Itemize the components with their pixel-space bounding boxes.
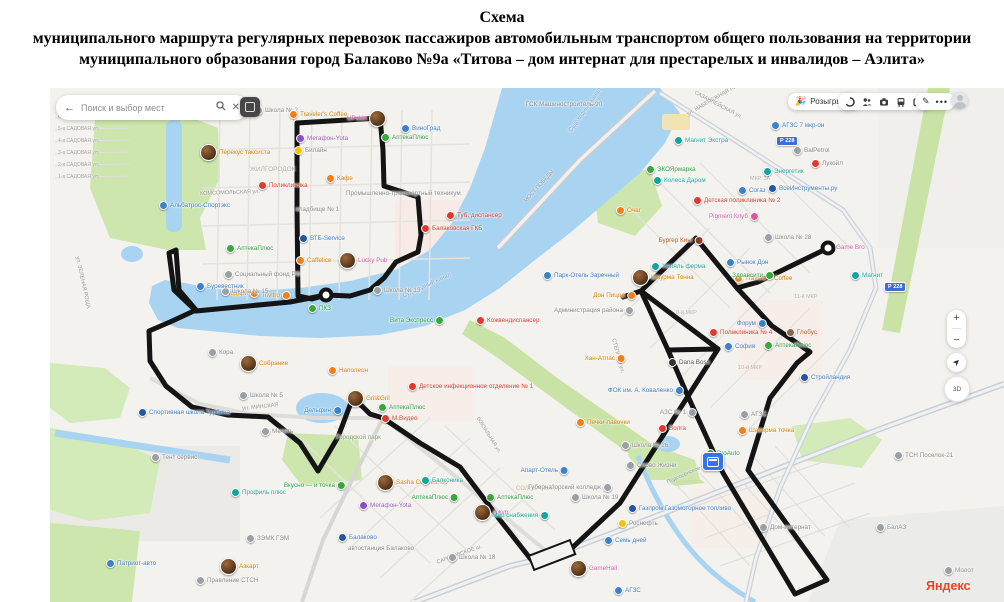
poi-dot[interactable]: Слово Жизни [626,461,677,470]
poi-dot[interactable]: Энергетик [763,167,804,176]
poi-photo-icon [200,144,217,161]
poi-label: Поликлиника № 4 [720,329,772,336]
poi-dot-icon [764,233,773,242]
poi-dot[interactable]: Согаз [738,186,766,195]
poi-dot-icon [208,348,217,357]
search-icon[interactable] [216,101,226,114]
poi-dot-icon [876,523,885,532]
poi-label: Очаг [627,207,641,214]
poi-dot[interactable]: Поликлиника № 4 [709,328,772,337]
poi-label: ГСК Машиностроитель-90 [526,101,602,108]
poi-dot[interactable]: Pigment Клуб [709,212,759,221]
poi-label: Глобус [797,329,817,336]
poi-dot-icon [378,403,387,412]
poi-dot[interactable]: Дельфин [304,406,342,415]
poi-dot-icon [401,124,410,133]
poi-dot[interactable]: Школа № 5 [239,391,283,400]
camera-icon[interactable] [879,97,889,107]
poi-dot[interactable]: Кожвендиспансер [476,316,539,325]
poi-dot-icon [695,236,704,245]
poi-label: М.Видео [392,415,417,422]
poi-label: Хан-Атлас [585,355,615,362]
title-line-2: муниципального маршрута регулярных перев… [0,28,1004,70]
poi-dot[interactable]: Парк-Отель Заречный [543,271,619,280]
poi-dot-icon [446,211,455,220]
poi-dot[interactable]: Dana Boss [668,358,710,367]
poi-dot-icon [800,373,809,382]
poi-dot-icon [196,282,205,291]
avatar-icon [957,95,963,101]
poi-dot-icon [373,286,382,295]
poi-label: Правление СТСН [207,577,258,584]
poi-dot-icon [576,418,585,427]
poi-dot-icon [106,559,115,568]
poi-dot[interactable]: Мечеть [261,427,293,436]
poi-dot[interactable]: Патриот-авто [106,559,156,568]
poi-label: Детское инфекционное отделение № 1 [419,383,533,390]
poi-label: UPskin [347,115,367,122]
poi-label: Собрание [259,360,288,367]
poi-label: Шаурма Тонна [651,274,694,281]
poi-dot-icon [750,212,759,221]
poi-label: Магнит [862,272,883,279]
poi-dot[interactable]: Социальный фонд РФ [224,270,300,279]
poi-dot-icon [674,136,683,145]
poi-photo-icon [377,474,394,491]
poi-dot-icon [231,488,240,497]
poi-dot[interactable]: Вита Экспресс [390,316,444,325]
poi-label: Наполеон [339,367,368,374]
poi-label: Вита Экспресс [390,317,433,324]
poi-dot-icon [296,134,305,143]
poi-label: Азкарт [239,563,259,570]
poi-dot[interactable]: ПКЗ [308,304,331,313]
poi-label: Альбатрос-Спортэкс [170,202,230,209]
poi-dot[interactable]: АптекаПлюс [764,341,811,350]
poi-dot-icon [261,427,270,436]
poi-dot[interactable]: АптекаПлюс [381,133,428,142]
poi-photo-icon [240,355,257,372]
poi-label: АптекаПлюс [775,342,811,349]
poi-dot[interactable]: Балаковская ГКБ [421,224,482,233]
poi-photo[interactable]: Шаурма Тонна [632,269,694,286]
poi-dot[interactable]: Наполеон [328,366,368,375]
poi-plain[interactable]: ГСК Машиностроитель-90 [526,101,602,108]
poi-dot-icon [758,319,767,328]
poi-dot[interactable]: Молот [944,566,974,575]
poi-label: Буревестник [207,283,244,290]
poi-label: Промышленно-транспортный техникум [346,190,461,197]
poi-label: Дом-интернат [770,524,811,531]
poi-label: Туб. диспансер [457,212,502,219]
poi-dot[interactable]: Газпром Газомоторное топливо [628,504,731,513]
poi-dot[interactable]: Профиль плюс [231,488,286,497]
poi-label: Мегафон-Yota [307,135,348,142]
poi-dot-icon [224,270,233,279]
poi-dot-icon [604,536,613,545]
poi-dot[interactable]: Билайн [294,146,327,155]
poi-dot[interactable]: Дон Пицца [593,291,636,300]
poi-dot-icon [675,386,684,395]
poi-dot[interactable]: Мегафон-Yota [359,501,411,510]
poi-dot-icon [328,366,337,375]
poi-dot-icon [333,406,342,415]
bus-icon [707,457,719,467]
tilt-3d-label: 3D [953,386,961,393]
poi-dot[interactable]: Вкусно — и точка [284,481,346,490]
poi-label: АптекаПлюс [412,494,448,501]
poi-label: Стройландия [811,374,850,381]
poi-label: Билайн [305,147,327,154]
poi-dot-icon [614,586,623,595]
poi-dot-icon [159,201,168,210]
poi-label: Здравсити [732,272,763,279]
poi-dot-icon [282,291,291,300]
poi-label: кладбище № 1 [296,206,339,213]
poi-dot[interactable]: Caffelice [296,256,331,265]
poi-dot-icon [668,358,677,367]
poi-dot[interactable]: АптекаПлюс [412,493,459,502]
poi-dot-icon [793,146,802,155]
poi-dot[interactable]: Школа № 28 [764,233,811,242]
poi-dot-icon [617,354,626,363]
poi-dot[interactable]: Лукойл [811,159,843,168]
poi-dot[interactable]: Стройландия [800,373,850,382]
poi-plain[interactable]: Промышленно-транспортный техникум [346,190,461,197]
poi-dot-icon [450,493,459,502]
poi-label: Dana Boss [679,359,710,366]
poi-label: Школа № 13 [384,287,420,294]
poi-dot-icon [651,262,660,271]
poi-dot-icon [646,165,655,174]
poi-dot-icon [571,493,580,502]
poi-label: Кора [219,349,233,356]
poi-dot-icon [764,341,773,350]
poi-dot[interactable]: BalPetrol [793,146,830,155]
poi-label: автостанция Балаково [348,545,414,552]
poi-dot-icon [628,504,637,513]
poi-label: Согаз [749,187,766,194]
poi-label: Школа № 28 [775,234,811,241]
poi-dot[interactable]: София [724,342,755,351]
poi-dot[interactable]: Здравсити [732,271,774,280]
poi-dot-icon [724,342,733,351]
poi-photo-icon [369,110,386,127]
poi-dot[interactable]: АптекаПлюс [378,403,425,412]
poi-dot[interactable]: Рынок Дон [726,258,769,267]
poi-dot[interactable]: М.Видео [381,414,417,423]
poi-dot[interactable]: Шаверма точка [738,426,794,435]
poi-dot[interactable]: Правление СТСН [196,576,258,585]
poi-dot-icon [653,176,662,185]
poi-dot-icon [688,408,697,417]
poi-label: ФОК им. А. Коваленко [608,387,673,394]
poi-dot[interactable]: Школа № 18 [448,553,495,562]
poi-label: Caffelice [307,257,331,264]
poi-photo-icon [347,390,364,407]
poi-dot-icon [421,224,430,233]
poi-dot[interactable]: АптекаПлюс [226,244,273,253]
poi-label: ТСН Поселок-21 [905,452,953,459]
poi-dot-icon [621,441,630,450]
poi-label: АптекаПлюс [497,494,533,501]
poi-label: Дельфин [304,407,331,414]
poi-label: Школа № 26 [632,442,668,449]
poi-dot-icon [226,244,235,253]
poi-label: Профиль плюс [242,489,286,496]
tilt-3d-control[interactable]: 3D [944,376,970,402]
road-shield: Р 228 [776,136,798,146]
poi-dot[interactable]: Школа № 26 [621,441,668,450]
poi-dot-icon [258,181,267,190]
poi-dot-icon [759,523,768,532]
poi-dot[interactable]: Мир снабжения [492,511,549,520]
poi-label: София [735,343,755,350]
poi-dot-icon [337,481,346,490]
poi-dot-icon [765,271,774,280]
poi-label: Магнит Экстра [685,137,728,144]
poi-dot[interactable]: ФОК им. А. Коваленко [608,386,684,395]
search-placeholder: Поиск и выбор мест [81,103,210,113]
poi-dot[interactable]: Семь дней [604,536,647,545]
poi-dot[interactable]: Глобус [786,328,817,337]
poi-label: Парк-Отель Заречный [554,272,619,279]
poi-dot-icon [151,453,160,462]
avatar[interactable] [951,92,968,109]
poi-dot[interactable]: Мегафон-Yota [296,134,348,143]
poi-label: Колеса Даром [664,177,706,184]
back-icon[interactable]: ← [64,102,75,114]
poi-dot-icon [738,426,747,435]
poi-dot-icon [763,167,772,176]
poi-label: Школа № 5 [250,392,283,399]
poi-dot[interactable]: АЗС № 1 [660,408,697,417]
poi-dot[interactable]: Кора [208,348,233,357]
poi-label: Школа № 19 [582,494,618,501]
poi-dot-icon [138,408,147,417]
poi-plain[interactable]: Game Bro [836,244,865,251]
poi-dot-icon [726,258,735,267]
poi-label: АГЗС [625,587,641,594]
zoom-out-button[interactable]: − [953,335,959,345]
poi-dot[interactable]: Туб. диспансер [446,211,502,220]
poi-label: Кафе [337,175,353,182]
poi-label: Вкусно — и точка [284,482,335,489]
poi-dot[interactable]: Волга [658,424,686,433]
poi-dot[interactable]: ВиноГрад [401,124,440,133]
poi-label: Мир снабжения [492,512,538,519]
title-line-1: Схема [0,0,1004,28]
poi-label: Дон Пицца [593,292,625,299]
poi-label: BalPetrol [804,147,830,154]
gift-icon: 🎉 [795,96,806,107]
poi-dot-icon [894,451,903,460]
poi-dot[interactable]: АГЗС 7 мкр-он [771,121,824,130]
poi-dot-icon [768,184,777,193]
poi-dot[interactable]: Очаг [616,206,641,215]
poi-dot-icon [616,206,625,215]
poi-dot-icon [476,316,485,325]
poi-label: Бургер Кинг [659,237,693,244]
poi-dot-icon [338,533,347,542]
poi-layer: Перекус таксистаШкола № 2Traveler's Coff… [50,88,1004,602]
poi-dot[interactable]: ВТБ-Service [299,234,345,243]
poi-label: Балаково [349,534,377,541]
panel-toggle-icon [245,102,255,112]
poi-dot-icon [408,382,417,391]
poi-label: АптекаПлюс [237,245,273,252]
poi-label: АЗС № 1 [660,409,686,416]
poi-dot-icon [626,461,635,470]
more-icon[interactable]: ••• [936,97,948,107]
poi-photo-icon [220,558,237,575]
road-shield: Р 228 [884,282,906,292]
poi-label: Мечеть [272,428,293,435]
poi-label: Кожвендиспансер [487,317,539,324]
poi-label: Молот [955,567,974,574]
zoom-in-button[interactable]: + [953,313,959,323]
poi-dot-icon [326,174,335,183]
poi-dot[interactable]: Колеса Даром [653,176,706,185]
poi-dot[interactable]: Халяль ферма [651,262,706,271]
poi-dot[interactable]: Балаково [338,533,377,542]
poi-dot-icon [299,234,308,243]
yandex-map[interactable]: 6-я САДОВАЯ ул.5-я САДОВАЯ ул.4-я САДОВА… [50,88,1004,602]
poi-dot[interactable]: Апарт-Отель [521,466,569,475]
poi-photo[interactable]: Lucky Pub [339,252,387,269]
poi-label: Социальный фонд РФ [235,271,300,278]
poi-dot[interactable]: АГЗС [614,586,641,595]
poi-dot[interactable]: Кафе [326,174,353,183]
poi-plain[interactable]: автостанция Балаково [348,545,414,552]
poi-plain[interactable]: кладбище № 1 [296,206,339,213]
poi-dot-icon [421,476,430,485]
poi-label: АптекаПлюс [392,134,428,141]
poi-dot[interactable]: Форум [737,319,767,328]
poi-photo[interactable]: UPskin [347,110,386,127]
poi-label: Спортивная школа Турбина [149,409,230,416]
poi-dot[interactable]: Балконика [421,476,463,485]
poi-dot-icon [740,410,749,419]
poi-dot-icon [246,534,255,543]
yandex-logo[interactable]: Яндекс [926,579,970,593]
poi-dot[interactable]: Буревестник [196,282,244,291]
poi-dot[interactable]: Магнит Экстра [674,136,728,145]
poi-dot[interactable]: Детская поликлиника № 2 [693,196,780,205]
poi-dot-icon [381,133,390,142]
poi-label: Балконика [432,477,463,484]
edit-toolbar[interactable]: ✎ ••• [915,93,955,110]
poi-label: Pigment Клуб [709,213,748,220]
poi-plain[interactable]: Городской парк [336,434,381,441]
poi-dot[interactable]: ЭКОЯрмарка [646,165,696,174]
poi-dot[interactable]: Детское инфекционное отделение № 1 [408,382,533,391]
poi-label: Gril&Gril [366,395,390,402]
poi-photo-icon [632,269,649,286]
poi-dot[interactable]: Бургер Кинг [659,236,704,245]
poi-dot[interactable]: Школа № 19 [571,493,618,502]
close-icon[interactable]: ✕ [232,102,240,113]
poi-dot[interactable]: БалАЗ [876,523,906,532]
poi-dot[interactable]: АптекаПлюс [486,493,533,502]
search-input[interactable]: ← Поиск и выбор мест ✕ [56,95,248,120]
poi-label: ВсеИнструменты.ру [779,185,837,192]
poi-label: Администрация района [554,307,623,314]
poi-dot-icon [543,271,552,280]
poi-dot[interactable]: Роснефть [618,519,658,528]
poi-dot[interactable]: АГЗС [740,410,767,419]
panel-toggle-button[interactable] [240,97,260,117]
poi-label: Газпром Газомоторное топливо [639,505,731,512]
bus-stop-badge[interactable] [702,452,724,471]
poi-photo-icon [570,560,587,577]
poi-label: Городской парк [336,434,381,441]
poi-label: Поликлиника [269,182,308,189]
poi-photo[interactable]: Азкарт [220,558,259,575]
poi-label: Lucky Pub [358,257,387,264]
poi-dot[interactable]: Администрация района [554,306,634,315]
poi-dot-icon [486,493,495,502]
poi-dot-icon [709,328,718,337]
poi-label: Game Bro [836,244,865,251]
poi-label: Роснефть [629,520,658,527]
poi-dot[interactable]: ТСН Поселок-21 [894,451,953,460]
poi-dot[interactable]: Поликлиника [258,181,308,190]
traffic-icon[interactable] [845,97,855,107]
locate-icon: ➤ [950,356,963,369]
poi-dot[interactable]: Спортивная школа Турбина [138,408,230,417]
poi-dot-icon [196,576,205,585]
zoom-control[interactable]: + − [947,310,966,348]
poi-dot[interactable]: Тент сервис [151,453,197,462]
poi-dot-icon [786,328,795,337]
poi-dot[interactable]: Печки-лавочки [576,418,630,427]
poi-dot-icon [448,553,457,562]
poi-dot[interactable]: Магнит [851,271,883,280]
poi-dot-icon [693,196,702,205]
poi-dot[interactable]: Школа № 13 [373,286,420,295]
pencil-icon[interactable]: ✎ [922,96,930,107]
poi-dot-icon [540,511,549,520]
poi-dot[interactable]: Хан-Атлас [585,354,626,363]
poi-label: Семь дней [615,537,647,544]
poi-photo-icon [474,504,491,521]
poi-dot-icon [851,271,860,280]
poi-dot-icon [618,519,627,528]
poi-photo[interactable]: Собрание [240,355,288,372]
poi-label: Мегафон-Yota [370,502,411,509]
poi-label: ВиноГрад [412,125,440,132]
poi-dot[interactable]: ВсеИнструменты.ру [768,184,837,193]
poi-dot-icon [603,483,612,492]
poi-dot-icon [811,159,820,168]
poi-label: GameHall [589,565,617,572]
poi-photo[interactable]: Перекус таксиста [200,144,270,161]
poi-label: Халяль ферма [662,263,706,270]
poi-photo[interactable]: GameHall [570,560,617,577]
poi-label: Энергетик [774,168,804,175]
poi-dot[interactable]: Traveler's Coffee [289,110,347,119]
transit-icon[interactable] [896,97,906,107]
poi-dot[interactable]: Дом-интернат [759,523,811,532]
poi-dot[interactable]: ЗЭМК ГЭМ [246,534,289,543]
friends-icon[interactable] [862,97,872,107]
poi-dot[interactable]: Губернаторский колледж [528,483,612,492]
poi-label: Печки-лавочки [587,419,630,426]
poi-dot-icon [627,291,636,300]
poi-dot[interactable]: Альбатрос-Спортэкс [159,201,230,210]
poi-dot-icon [294,146,303,155]
